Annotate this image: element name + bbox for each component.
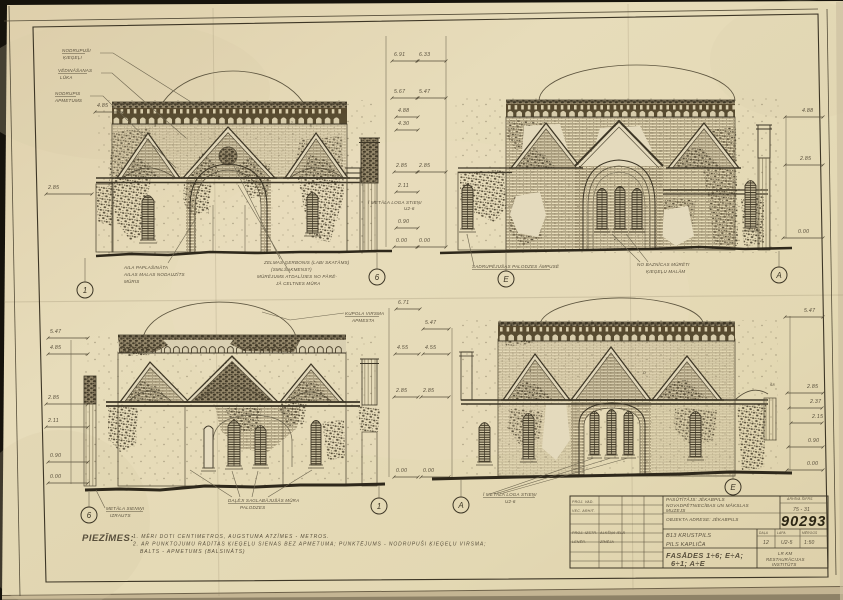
svg-text:2.85: 2.85 <box>47 395 59 401</box>
svg-text:PASŪTĪTĀJS: JĒKABPILS: PASŪTĪTĀJS: JĒKABPILS <box>666 496 725 502</box>
svg-text:DAĻA: DAĻA <box>759 531 768 535</box>
svg-text:0.90: 0.90 <box>808 438 819 444</box>
svg-text:0.00: 0.00 <box>50 474 61 480</box>
svg-text:SADRUPĒJUŠAS PALODZES ĀMPUSĒ: SADRUPĒJUŠAS PALODZES ĀMPUSĒ <box>472 263 560 269</box>
svg-text:A: A <box>457 501 463 510</box>
svg-text:4.55: 4.55 <box>425 345 436 351</box>
svg-text:6: 6 <box>375 273 380 282</box>
svg-text:LENĒR.: LENĒR. <box>572 540 586 544</box>
svg-text:2.15: 2.15 <box>811 414 823 420</box>
svg-text:MŪRIS: MŪRIS <box>124 278 140 284</box>
svg-text:1: 1 <box>83 286 87 295</box>
svg-text:METĀLA SIENIŅI: METĀLA SIENIŅI <box>106 505 145 511</box>
svg-text:LAPA: LAPA <box>777 531 786 535</box>
svg-text:2.85: 2.85 <box>395 388 407 394</box>
svg-text:MĒROGS: MĒROGS <box>802 531 818 535</box>
svg-text:68: 68 <box>770 382 775 387</box>
svg-text:KUPOLA VIRSMA: KUPOLA VIRSMA <box>345 311 384 316</box>
svg-text:PALODZES: PALODZES <box>240 505 265 510</box>
svg-text:LR KM: LR KM <box>778 551 793 556</box>
svg-text:1:50: 1:50 <box>804 540 815 546</box>
svg-text:4.85: 4.85 <box>97 103 108 109</box>
svg-text:5.47: 5.47 <box>425 320 437 326</box>
svg-text:2.85: 2.85 <box>418 163 430 169</box>
svg-text:6.33: 6.33 <box>419 52 430 58</box>
svg-text:DAĻĒJI SAGLABĀJUŠĀS MŪRA: DAĻĒJI SAGLABĀJUŠĀS MŪRA <box>228 497 299 503</box>
svg-text:ALKŠŅA IELĀ: ALKŠŅA IELĀ <box>599 530 625 535</box>
svg-text:2. AR PUNKTOJUMU RĀDĪTAS ĶIEĢE: 2. AR PUNKTOJUMU RĀDĪTAS ĶIEĢEĻU SIENAS … <box>132 541 486 548</box>
svg-text:4.30: 4.30 <box>398 121 409 127</box>
svg-text:OBJEKTA ADRESE: JĒKABPILS: OBJEKTA ADRESE: JĒKABPILS <box>666 516 739 522</box>
svg-text:D: D <box>643 370 646 375</box>
svg-text:A: A <box>775 271 781 280</box>
svg-text:5.67: 5.67 <box>394 89 406 95</box>
svg-text:ZĪMĒJA: ZĪMĒJA <box>599 540 614 544</box>
svg-text:4.88: 4.88 <box>398 108 409 114</box>
svg-text:98: 98 <box>589 147 593 152</box>
svg-text:0.00: 0.00 <box>396 468 407 474</box>
svg-text:INSTITŪTS: INSTITŪTS <box>772 562 796 567</box>
svg-text:MŪRĒJUMS ATDALĪJIES NO PĀRĒ-: MŪRĒJUMS ATDALĪJIES NO PĀRĒ- <box>257 273 337 279</box>
svg-text:NODRUPUŠI: NODRUPUŠI <box>62 47 91 53</box>
svg-text:JĀ CELTNES MŪRA: JĀ CELTNES MŪRA <box>275 280 320 286</box>
svg-text:0.00: 0.00 <box>396 238 407 244</box>
svg-text:NO BAZNĪCAS MŪRĒTI: NO BAZNĪCAS MŪRĒTI <box>637 261 690 267</box>
svg-text:75 - 31: 75 - 31 <box>793 507 810 513</box>
svg-text:E: E <box>730 483 736 492</box>
svg-text:6÷1; A÷E: 6÷1; A÷E <box>671 559 706 568</box>
svg-text:VĒDINĀŠANAS: VĒDINĀŠANAS <box>58 67 92 73</box>
svg-text:PROJ. VAD.: PROJ. VAD. <box>572 500 594 504</box>
svg-text:LŪKA: LŪKA <box>60 74 73 80</box>
svg-text:2.85: 2.85 <box>799 156 811 162</box>
svg-text:2.11: 2.11 <box>397 183 409 189</box>
svg-text:4.88: 4.88 <box>802 108 813 114</box>
svg-text:ĶIEĢEĻI: ĶIEĢEĻI <box>63 55 82 60</box>
svg-text:ARHĪVA ŠIFRS: ARHĪVA ŠIFRS <box>786 496 813 501</box>
svg-text:2.37: 2.37 <box>809 399 822 405</box>
svg-text:AILA PAPLAŠINĀTA: AILA PAPLAŠINĀTA <box>123 264 168 270</box>
svg-text:PILS KAPLIČA: PILS KAPLIČA <box>666 541 706 548</box>
svg-text:2.85: 2.85 <box>395 163 407 169</box>
svg-text:1.2: 1.2 <box>206 207 210 214</box>
svg-text:1. MĒRI DOTI CENTIMETROS, AUGS: 1. MĒRI DOTI CENTIMETROS, AUGSTUMA ATZĪM… <box>133 533 329 540</box>
svg-text:0.00: 0.00 <box>419 238 430 244</box>
svg-text:1.2: 1.2 <box>287 121 294 125</box>
svg-text:ZELMAS ĢERBONIS (LABI SKATĀMS): ZELMAS ĢERBONIS (LABI SKATĀMS) <box>263 259 350 265</box>
svg-text:NODRUPIS: NODRUPIS <box>55 91 80 96</box>
svg-text:MUZEJS: MUZEJS <box>666 508 686 513</box>
svg-text:B13 KRUSTPILS: B13 KRUSTPILS <box>666 533 711 539</box>
svg-text:APMESTA: APMESTA <box>351 318 375 323</box>
svg-text:6.91: 6.91 <box>394 52 405 58</box>
svg-text:1: 1 <box>605 356 607 361</box>
svg-text:90293: 90293 <box>781 514 826 530</box>
svg-text:5.47: 5.47 <box>804 308 816 314</box>
svg-text:1: 1 <box>377 502 381 511</box>
svg-text:E: E <box>503 275 509 284</box>
svg-text:ĶIEĢEĻU MALĀM: ĶIEĢEĻU MALĀM <box>646 268 685 274</box>
svg-text:0.00: 0.00 <box>423 468 434 474</box>
svg-text:6.71: 6.71 <box>398 300 409 306</box>
svg-text:AILAS MALAS NODAUZĪTS: AILAS MALAS NODAUZĪTS <box>123 271 185 277</box>
svg-text:PROJ. IZSTR.: PROJ. IZSTR. <box>572 531 597 535</box>
svg-text:PIEZĪMES:: PIEZĪMES: <box>82 533 134 544</box>
svg-text:5.47: 5.47 <box>50 329 62 335</box>
svg-text:APMETUMS: APMETUMS <box>54 98 82 103</box>
svg-text:VEC. ARHIT.: VEC. ARHIT. <box>572 509 595 513</box>
svg-text:BALTS - APMETUMS (BALSINĀTS): BALTS - APMETUMS (BALSINĀTS) <box>140 548 246 555</box>
svg-text:Ī METĀLA LOGA STIEŅI: Ī METĀLA LOGA STIEŅI <box>483 491 537 497</box>
svg-text:2.11: 2.11 <box>47 418 59 424</box>
svg-text:(SMILŠAKMENS?): (SMILŠAKMENS?) <box>271 266 312 272</box>
svg-text:0.90: 0.90 <box>398 219 409 225</box>
svg-text:A: A <box>259 338 263 343</box>
svg-text:6: 6 <box>87 511 92 520</box>
svg-text:U2-5: U2-5 <box>781 540 793 546</box>
svg-text:IZRAUTS: IZRAUTS <box>110 513 131 518</box>
svg-text:Ī METĀLA LOGA STIEŅI: Ī METĀLA LOGA STIEŅI <box>368 199 422 205</box>
svg-text:4.7: 4.7 <box>124 343 131 347</box>
svg-text:4.55: 4.55 <box>397 345 408 351</box>
svg-text:U2-6: U2-6 <box>404 206 415 211</box>
svg-text:12: 12 <box>763 540 769 546</box>
svg-text:4.85: 4.85 <box>50 345 61 351</box>
svg-text:2.85: 2.85 <box>422 388 434 394</box>
svg-text:2.85: 2.85 <box>47 185 59 191</box>
svg-text:0.90: 0.90 <box>50 453 61 459</box>
svg-text:47: 47 <box>196 118 201 122</box>
svg-text:2.85: 2.85 <box>806 384 818 390</box>
svg-text:0.00: 0.00 <box>807 461 818 467</box>
svg-text:U2-6: U2-6 <box>505 499 516 504</box>
svg-text:5.47: 5.47 <box>419 89 431 95</box>
svg-text:0.00: 0.00 <box>798 229 809 235</box>
